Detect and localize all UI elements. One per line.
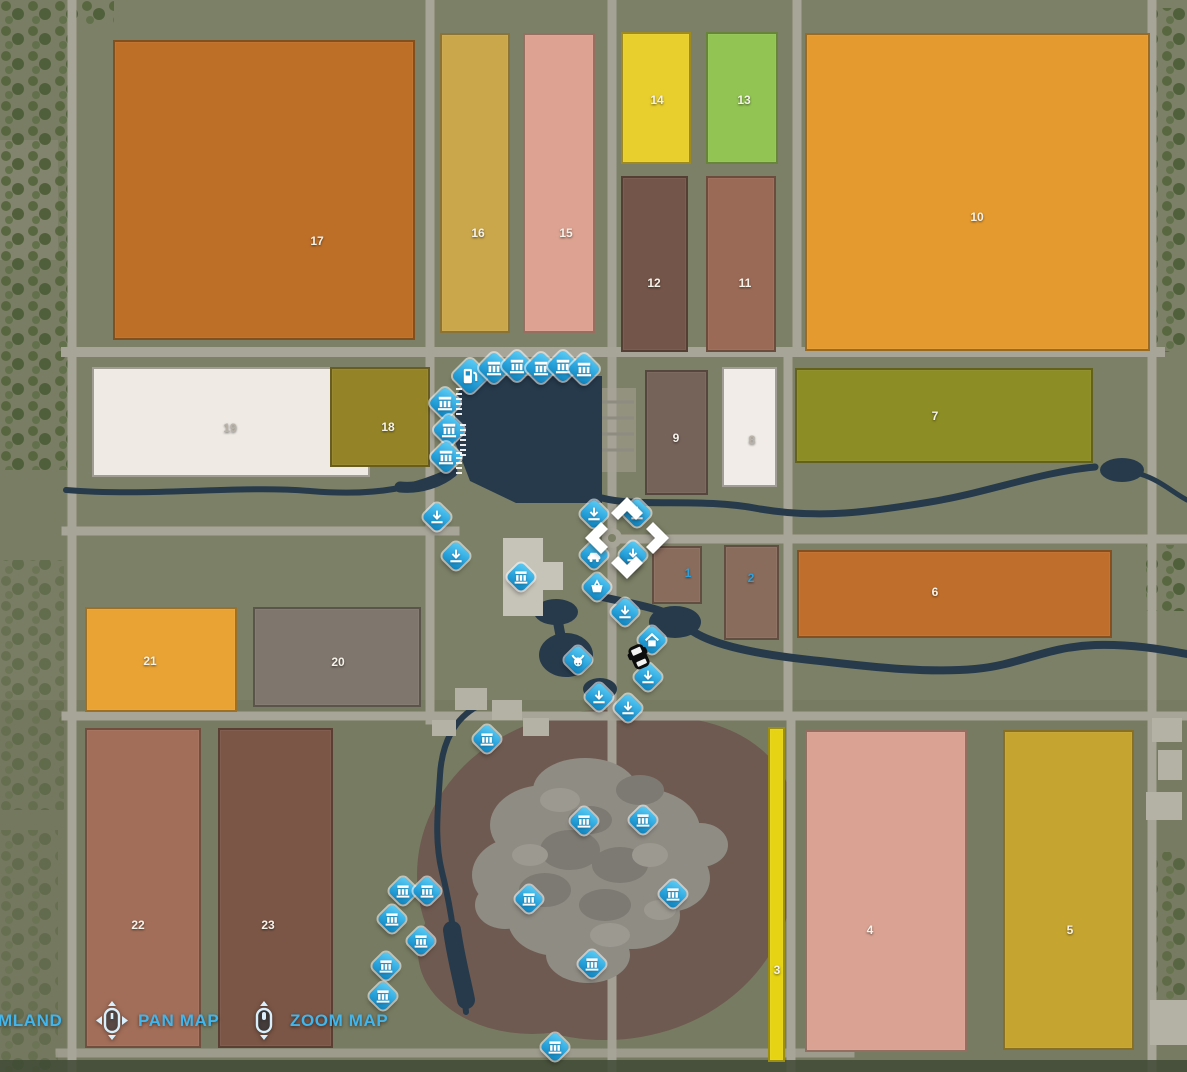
field-9[interactable] <box>645 370 708 495</box>
station-label-text <box>456 388 462 416</box>
field-13[interactable] <box>706 32 778 164</box>
field-1[interactable] <box>652 546 702 604</box>
farmland-label[interactable]: MLAND <box>0 1011 62 1031</box>
mouse-pan-icon <box>94 1000 130 1042</box>
pan-map-label: PAN MAP <box>138 1011 219 1031</box>
map-bottom-edge <box>0 1060 1187 1072</box>
field-14[interactable] <box>621 32 691 164</box>
field-19[interactable] <box>92 367 370 477</box>
zoom-map-label: ZOOM MAP <box>290 1011 388 1031</box>
station-label-text <box>456 452 462 476</box>
pan-map-button[interactable]: PAN MAP <box>94 1000 219 1042</box>
field-8[interactable] <box>722 367 777 487</box>
mouse-zoom-icon <box>246 1000 282 1042</box>
field-12[interactable] <box>621 176 688 352</box>
field-18[interactable] <box>330 367 430 467</box>
field-5[interactable] <box>1003 730 1134 1050</box>
map-screen: 1716151413121110191898712621202223345 ML… <box>0 0 1187 1072</box>
field-20[interactable] <box>253 607 421 707</box>
field-3[interactable] <box>768 727 785 1062</box>
field-16[interactable] <box>440 33 510 333</box>
field-11[interactable] <box>706 176 776 352</box>
field-21[interactable] <box>85 607 237 712</box>
field-7[interactable] <box>795 368 1093 463</box>
field-2[interactable] <box>724 545 779 640</box>
lake <box>455 376 602 503</box>
field-17[interactable] <box>113 40 415 340</box>
field-4[interactable] <box>805 730 967 1052</box>
field-10[interactable] <box>805 33 1150 351</box>
field-6[interactable] <box>797 550 1112 638</box>
field-15[interactable] <box>523 33 595 333</box>
roundabout-center <box>608 534 616 542</box>
zoom-map-button[interactable]: ZOOM MAP <box>246 1000 388 1042</box>
